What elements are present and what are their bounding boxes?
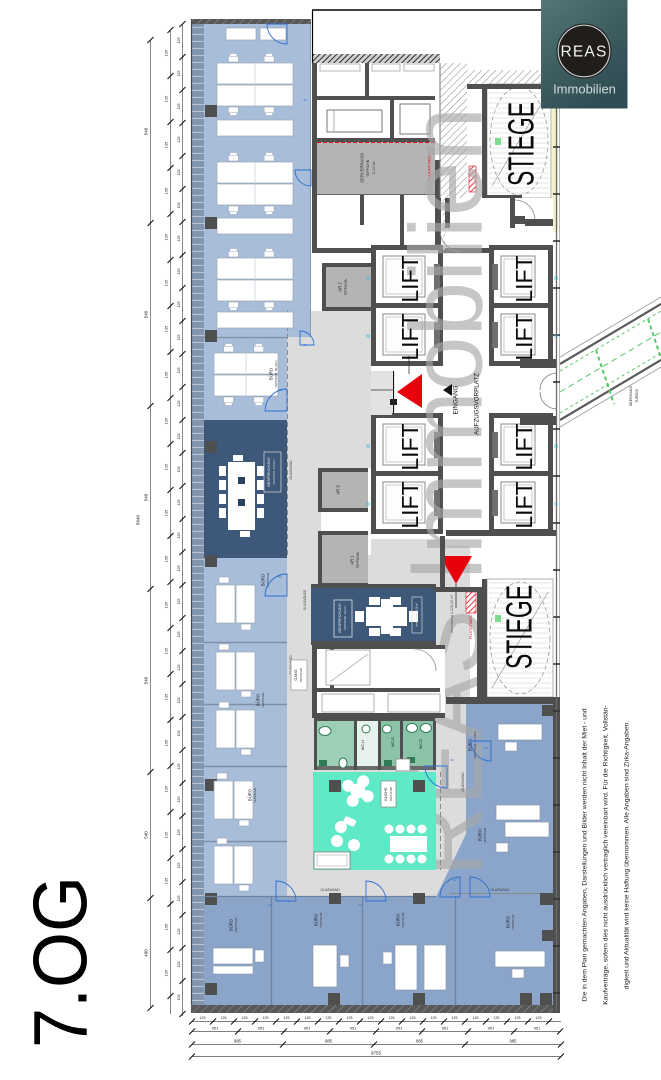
svg-text:90: 90: [278, 388, 282, 392]
svg-text:≋: ≋: [553, 334, 558, 340]
svg-text:125: 125: [177, 632, 181, 638]
svg-text:125: 125: [177, 236, 181, 242]
svg-text:TEPPICHB.: TEPPICHB.: [344, 278, 348, 295]
svg-text:Die in dem Plan gemachten Anga: Die in dem Plan gemachten Angaben, Darst…: [582, 708, 589, 1001]
svg-text:≋: ≋: [365, 276, 370, 282]
svg-text:985: 985: [416, 1039, 424, 1044]
svg-text:125: 125: [177, 335, 181, 341]
svg-text:540: 540: [144, 676, 149, 684]
svg-text:LIFT: LIFT: [397, 481, 423, 528]
svg-text:125: 125: [177, 830, 181, 836]
svg-text:951: 951: [304, 1026, 311, 1031]
svg-text:90: 90: [303, 98, 307, 102]
svg-text:135: 135: [164, 233, 169, 240]
svg-text:125: 125: [473, 1016, 479, 1020]
svg-text:TEPPICHB.: TEPPICHB.: [261, 692, 265, 708]
svg-text:951: 951: [534, 1026, 541, 1031]
svg-text:ÜBERGANG: ÜBERGANG: [629, 386, 633, 407]
svg-text:125: 125: [326, 1016, 332, 1020]
svg-text:≋: ≋: [365, 444, 370, 450]
svg-text:LIFT: LIFT: [511, 481, 537, 528]
svg-text:951: 951: [350, 1026, 357, 1031]
svg-text:LIFT: LIFT: [511, 255, 537, 302]
svg-text:135: 135: [164, 555, 169, 562]
svg-text:125: 125: [177, 797, 181, 803]
svg-text:EINGANG: EINGANG: [453, 385, 460, 414]
svg-text:SERVERRAUM: SERVERRAUM: [360, 153, 365, 183]
svg-text:STIEGE: STIEGE: [501, 102, 542, 186]
svg-text:TEPPICHB.: TEPPICHB.: [389, 786, 393, 801]
svg-text:LIFT: LIFT: [397, 255, 423, 302]
svg-text:digkeit und Aktualität wird ke: digkeit und Aktualität wird keine Haftun…: [624, 721, 631, 990]
svg-text:GLASWAND: GLASWAND: [289, 460, 293, 480]
svg-text:AR 3: AR 3: [336, 485, 341, 495]
svg-text:Vermietung 1.228,12 m²: Vermietung 1.228,12 m²: [450, 594, 454, 633]
svg-text:125: 125: [177, 500, 181, 506]
svg-text:BÜRO: BÜRO: [314, 913, 319, 926]
svg-text:125: 125: [177, 302, 181, 308]
svg-text:125: 125: [284, 1016, 290, 1020]
svg-text:BÜRO: BÜRO: [248, 788, 253, 801]
svg-text:125: 125: [177, 764, 181, 770]
svg-text:951: 951: [442, 1026, 449, 1031]
svg-text:90: 90: [303, 343, 307, 347]
svg-text:BÜRO: BÜRO: [506, 915, 511, 928]
svg-text:125: 125: [177, 203, 181, 209]
svg-text:GLASWAND: GLASWAND: [461, 772, 465, 792]
svg-text:125: 125: [177, 401, 181, 407]
svg-text:125: 125: [515, 1016, 521, 1020]
svg-text:135: 135: [164, 417, 169, 424]
svg-text:≋: ≋: [365, 502, 370, 508]
svg-text:135: 135: [164, 785, 169, 792]
svg-text:KÜCHE: KÜCHE: [384, 787, 388, 801]
svg-text:135: 135: [164, 739, 169, 746]
svg-text:125: 125: [177, 104, 181, 110]
svg-text:125: 125: [305, 1016, 311, 1020]
svg-text:90: 90: [278, 575, 282, 579]
svg-text:TEPPICHB.: TEPPICHB.: [299, 667, 303, 682]
svg-text:125: 125: [452, 1016, 458, 1020]
svg-text:TURM B: TURM B: [635, 389, 639, 403]
svg-text:125: 125: [242, 1016, 248, 1020]
svg-text:REAS: REAS: [560, 44, 607, 61]
svg-text:540: 540: [144, 493, 149, 501]
svg-text:GLASWAND: GLASWAND: [490, 888, 510, 892]
svg-text:985: 985: [234, 1039, 242, 1044]
svg-text:FLUCHTWEG: FLUCHTWEG: [469, 615, 473, 639]
svg-text:135: 135: [164, 969, 169, 976]
svg-text:90: 90: [268, 903, 272, 907]
svg-text:951: 951: [212, 1026, 219, 1031]
svg-text:125: 125: [177, 995, 181, 1001]
svg-text:LIFT: LIFT: [397, 423, 423, 470]
svg-text:125: 125: [177, 896, 181, 902]
svg-text:90: 90: [358, 903, 362, 907]
svg-text:125: 125: [200, 1016, 206, 1020]
svg-text:GLASWAND: GLASWAND: [320, 888, 340, 892]
svg-text:BÜRO: BÜRO: [256, 693, 261, 706]
svg-text:90: 90: [484, 746, 488, 750]
svg-text:135: 135: [164, 831, 169, 838]
svg-text:≋: ≋: [553, 444, 558, 450]
svg-text:7.OG: 7.OG: [19, 876, 104, 1048]
svg-text:125: 125: [177, 434, 181, 440]
svg-text:TEPPICHB.: TEPPICHB.: [356, 551, 360, 568]
svg-text:TEPPICHB.: TEPPICHB.: [483, 827, 487, 843]
svg-text:125: 125: [177, 863, 181, 869]
svg-text:≋: ≋: [365, 334, 370, 340]
svg-text:TEPPICHB.: TEPPICHB.: [319, 912, 323, 928]
svg-text:125: 125: [177, 137, 181, 143]
svg-text:LIFT: LIFT: [397, 313, 423, 360]
svg-text:135: 135: [164, 509, 169, 516]
svg-text:125: 125: [177, 731, 181, 737]
svg-text:135: 135: [164, 601, 169, 608]
svg-text:TEPPICHB.: TEPPICHB.: [511, 914, 515, 930]
svg-text:135: 135: [164, 463, 169, 470]
svg-text:125: 125: [177, 533, 181, 539]
svg-text:Vermietung 1.228 m²: Vermietung 1.228 m²: [415, 603, 419, 627]
svg-text:TEPPICHB. 35,06m²: TEPPICHB. 35,06m²: [272, 459, 276, 485]
svg-text:125: 125: [221, 1016, 227, 1020]
svg-text:135: 135: [164, 279, 169, 286]
svg-text:125: 125: [177, 170, 181, 176]
svg-text:TEPPICHB.: TEPPICHB.: [366, 159, 370, 177]
svg-text:135: 135: [164, 371, 169, 378]
svg-text:490: 490: [144, 949, 149, 957]
svg-text:GLASWÄNDE: GLASWÄNDE: [303, 590, 307, 610]
svg-text:125: 125: [177, 467, 181, 473]
svg-text:GANG: GANG: [294, 669, 298, 680]
svg-text:BÜRO: BÜRO: [229, 918, 234, 931]
svg-text:125: 125: [177, 566, 181, 572]
svg-text:90: 90: [450, 758, 454, 762]
svg-text:AR 2: AR 2: [338, 282, 343, 292]
svg-text:125: 125: [431, 1016, 437, 1020]
svg-text:BESPRECHUNG: BESPRECHUNG: [338, 603, 342, 632]
svg-text:951: 951: [488, 1026, 495, 1031]
svg-text:WC-H: WC-H: [361, 740, 365, 751]
svg-text:90: 90: [453, 878, 457, 882]
svg-text:540: 540: [144, 127, 149, 135]
svg-text:951: 951: [258, 1026, 265, 1031]
svg-text:BÜRO: BÜRO: [396, 913, 401, 926]
svg-text:BÜRO: BÜRO: [261, 573, 266, 586]
svg-text:Immobilien: Immobilien: [553, 82, 616, 97]
svg-text:AR 1: AR 1: [350, 555, 355, 565]
svg-text:135: 135: [164, 187, 169, 194]
svg-text:135: 135: [164, 693, 169, 700]
svg-text:125: 125: [177, 929, 181, 935]
svg-text:TEPPICHB. 19,6m²: TEPPICHB. 19,6m²: [343, 606, 347, 630]
svg-text:11,00 m²: 11,00 m²: [372, 161, 376, 175]
svg-text:540: 540: [144, 310, 149, 318]
svg-text:125: 125: [177, 38, 181, 44]
svg-text:540: 540: [144, 831, 149, 839]
svg-text:125: 125: [410, 1016, 416, 1020]
svg-text:125: 125: [177, 665, 181, 671]
svg-text:125: 125: [177, 698, 181, 704]
svg-text:135: 135: [164, 923, 169, 930]
svg-text:135: 135: [164, 95, 169, 102]
svg-text:STIEGE: STIEGE: [499, 585, 540, 669]
svg-text:BESPRECHUNG: BESPRECHUNG: [267, 457, 271, 486]
svg-text:125: 125: [347, 1016, 353, 1020]
svg-text:125: 125: [177, 368, 181, 374]
svg-text:125: 125: [368, 1016, 374, 1020]
svg-text:AUFZUGSVORPLATZ: AUFZUGSVORPLATZ: [474, 373, 481, 435]
svg-text:135: 135: [164, 325, 169, 332]
svg-text:985: 985: [325, 1039, 333, 1044]
svg-text:≋: ≋: [553, 276, 558, 282]
svg-text:TEPPICHB.: TEPPICHB.: [253, 787, 257, 803]
svg-text:LIFT: LIFT: [511, 423, 537, 470]
svg-text:125: 125: [177, 599, 181, 605]
svg-text:WC-D: WC-D: [419, 739, 423, 750]
svg-text:951: 951: [396, 1026, 403, 1031]
svg-text:TEPPICHB.: TEPPICHB.: [401, 912, 405, 928]
svg-text:135: 135: [164, 49, 169, 56]
svg-text:985: 985: [510, 1039, 518, 1044]
svg-text:135: 135: [164, 647, 169, 654]
svg-text:125: 125: [177, 269, 181, 275]
svg-text:125: 125: [494, 1016, 500, 1020]
svg-text:8940: 8940: [136, 514, 141, 525]
svg-text:LIFT: LIFT: [511, 313, 537, 360]
svg-text:125: 125: [177, 962, 181, 968]
svg-text:125: 125: [263, 1016, 269, 1020]
svg-text:BÜRO: BÜRO: [478, 828, 483, 841]
svg-text:125: 125: [177, 71, 181, 77]
svg-text:125: 125: [536, 1016, 542, 1020]
svg-text:135: 135: [164, 877, 169, 884]
svg-text:125: 125: [389, 1016, 395, 1020]
svg-text:WC-D: WC-D: [391, 737, 395, 748]
svg-text:9755: 9755: [371, 1051, 382, 1056]
svg-text:TEPPICHB.: TEPPICHB.: [234, 917, 238, 933]
svg-text:135: 135: [164, 141, 169, 148]
svg-text:TEPPICHB. 50,32m²: TEPPICHB. 50,32m²: [274, 360, 278, 388]
svg-text:Kaufverträge, sofern dies nich: Kaufverträge, sofern dies nicht ausdrück…: [603, 705, 610, 1005]
svg-text:BÜRO: BÜRO: [269, 367, 274, 380]
svg-text:≋: ≋: [553, 502, 558, 508]
